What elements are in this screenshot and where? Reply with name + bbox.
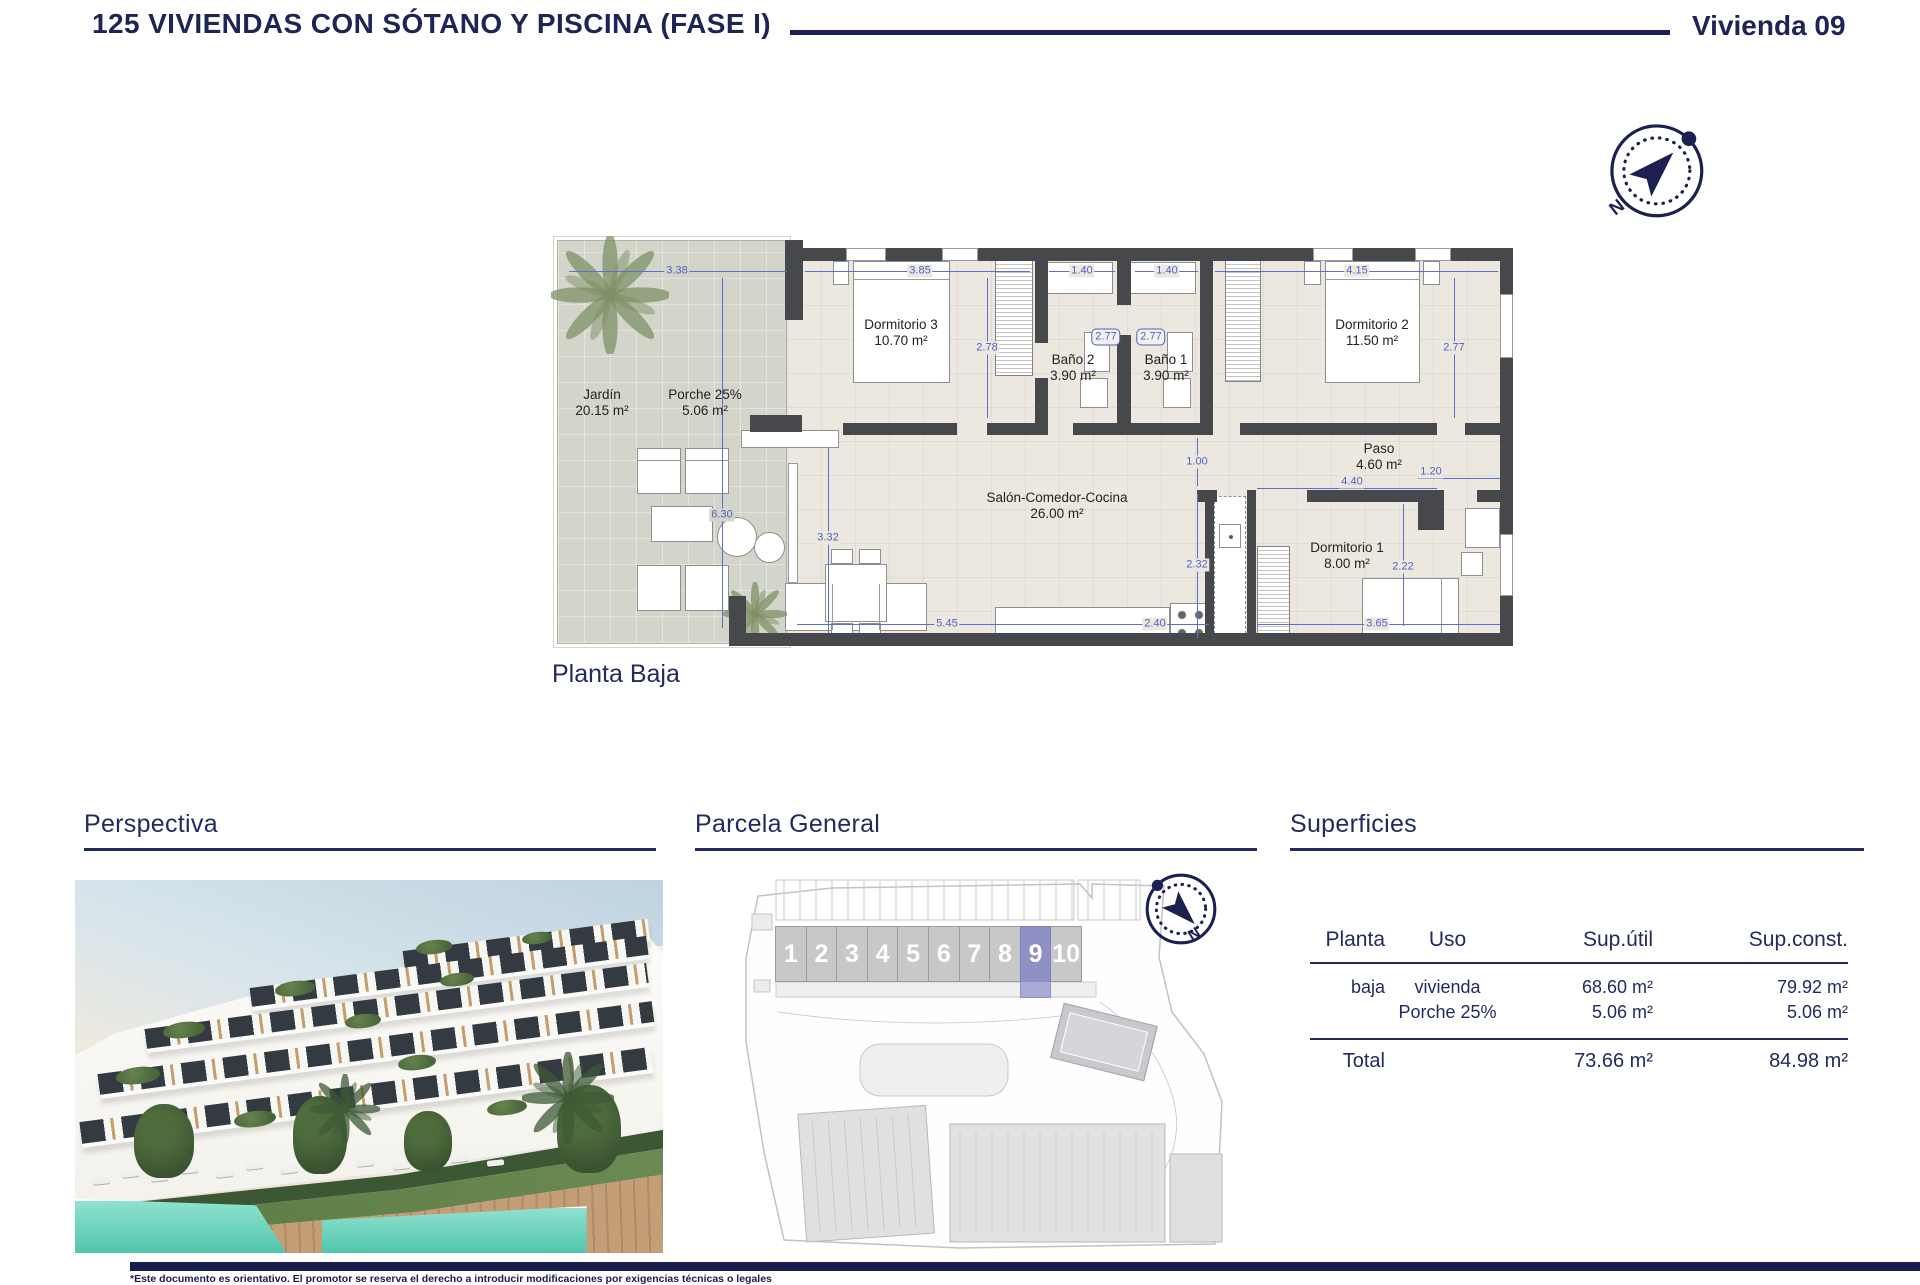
dim-label: 1.00 bbox=[1184, 456, 1209, 469]
col-header-sup-util: Sup.útil bbox=[1510, 928, 1653, 960]
unit-label: Vivienda 09 bbox=[1692, 10, 1846, 42]
wall bbox=[1200, 261, 1213, 435]
north-compass-icon: N bbox=[1600, 114, 1710, 224]
compass-north-letter: N bbox=[1605, 194, 1628, 219]
tree bbox=[134, 1104, 194, 1178]
wall bbox=[1247, 490, 1256, 646]
terrace-glass-door bbox=[788, 463, 798, 583]
floor-plan: 3.38 3.85 1.40 1.40 4.15 2.78 2.77 2.77 … bbox=[557, 238, 1530, 660]
wall bbox=[1073, 423, 1200, 435]
unit-cell: 6 bbox=[928, 926, 960, 982]
table-rule bbox=[1310, 962, 1848, 964]
kitchen-tall-unit bbox=[1214, 496, 1246, 644]
window bbox=[846, 248, 886, 261]
wall bbox=[729, 633, 1513, 646]
cell-empty bbox=[1385, 1050, 1510, 1073]
table-total-row: Total 73.66 m² 84.98 m² bbox=[1310, 1050, 1848, 1073]
wall bbox=[1465, 423, 1500, 435]
unit-cell: 4 bbox=[867, 926, 899, 982]
cell-sup-const: 79.92 m² bbox=[1653, 976, 1848, 999]
cell-uso: vivienda bbox=[1385, 976, 1510, 999]
plan-caption: Planta Baja bbox=[552, 660, 680, 689]
cell-sup-util: 5.06 m² bbox=[1510, 1001, 1653, 1024]
wall bbox=[787, 248, 1513, 261]
unit-row: 1 2 3 4 5 6 7 8 9 10 bbox=[775, 926, 1081, 982]
cell-total-sup-util: 73.66 m² bbox=[1510, 1050, 1653, 1073]
table-row: Porche 25% 5.06 m² 5.06 m² bbox=[1310, 1001, 1848, 1024]
dim-label: 2.32 bbox=[1184, 559, 1209, 572]
section-rule bbox=[695, 848, 1257, 851]
tree bbox=[404, 1111, 452, 1171]
dim-line bbox=[722, 278, 723, 628]
room-label-bano-1: Baño 13.90 m² bbox=[1143, 352, 1189, 384]
garden-chair bbox=[637, 565, 681, 611]
palm-tree-icon bbox=[310, 1074, 380, 1144]
window bbox=[1415, 248, 1451, 261]
room-label-dormitorio-2: Dormitorio 211.50 m² bbox=[1335, 317, 1409, 349]
footer-bar bbox=[130, 1262, 1920, 1271]
dim-label: 1.20 bbox=[1418, 466, 1443, 479]
wall bbox=[1418, 490, 1444, 530]
dining-table bbox=[825, 564, 887, 622]
bed-pillow-line bbox=[1326, 279, 1419, 280]
dim-label: 3.32 bbox=[815, 532, 840, 545]
dim-label: 1.40 bbox=[1069, 265, 1094, 278]
nightstand bbox=[833, 261, 849, 285]
site-compass-icon: N bbox=[1140, 868, 1222, 950]
pool bbox=[75, 1199, 287, 1253]
section-title-perspectiva: Perspectiva bbox=[84, 810, 218, 839]
cell-total-label: Total bbox=[1310, 1050, 1385, 1073]
wall bbox=[785, 240, 803, 320]
superficies-table: Planta Uso Sup.útil Sup.const. baja vivi… bbox=[1310, 928, 1848, 1073]
unit-cell: 5 bbox=[897, 926, 929, 982]
unit-cell: 2 bbox=[806, 926, 838, 982]
section-title-parcela: Parcela General bbox=[695, 810, 880, 839]
unit-cell: 1 bbox=[775, 926, 807, 982]
window bbox=[1313, 248, 1353, 261]
nightstand bbox=[1461, 552, 1483, 576]
wall bbox=[843, 423, 957, 435]
col-header-planta: Planta bbox=[1310, 928, 1385, 960]
wall bbox=[1307, 490, 1418, 502]
dim-label: 4.40 bbox=[1339, 476, 1364, 489]
dim-label: 3.38 bbox=[664, 265, 689, 278]
wall bbox=[1240, 423, 1437, 435]
tv-sideboard bbox=[741, 430, 839, 448]
wall bbox=[1035, 261, 1048, 343]
unit-cell: 8 bbox=[989, 926, 1021, 982]
wall bbox=[1117, 335, 1131, 435]
cell-planta bbox=[1310, 1001, 1385, 1024]
garden-table bbox=[651, 506, 713, 542]
section-rule bbox=[1290, 848, 1864, 851]
dim-label: 2.77 bbox=[1091, 329, 1120, 346]
dim-label: 1.40 bbox=[1154, 265, 1179, 278]
dim-label: 4.15 bbox=[1344, 265, 1369, 278]
dim-label: 2.77 bbox=[1136, 329, 1165, 346]
footer-disclaimer: *Este documento es orientativo. El promo… bbox=[130, 1273, 772, 1285]
garden-chair bbox=[637, 448, 681, 494]
dim-label: 5.45 bbox=[934, 618, 959, 631]
room-label-dormitorio-1: Dormitorio 18.00 m² bbox=[1310, 540, 1384, 572]
palm-tree-icon bbox=[551, 236, 669, 354]
window bbox=[1500, 534, 1513, 596]
table-row: baja vivienda 68.60 m² 79.92 m² bbox=[1310, 976, 1848, 999]
dim-label: 2.78 bbox=[974, 342, 999, 355]
nightstand bbox=[1423, 261, 1440, 285]
bed-pillow-line bbox=[854, 279, 949, 280]
section-title-superficies: Superficies bbox=[1290, 810, 1417, 839]
wall bbox=[1477, 490, 1500, 502]
cell-sup-util: 68.60 m² bbox=[1510, 976, 1653, 999]
wall bbox=[750, 415, 802, 432]
section-rule bbox=[84, 848, 656, 851]
cell-uso: Porche 25% bbox=[1385, 1001, 1510, 1024]
bed-pillow-line bbox=[1441, 579, 1442, 634]
nightstand bbox=[1304, 261, 1321, 285]
unit-cell-highlighted: 9 bbox=[1020, 926, 1052, 982]
room-label-bano-2: Baño 23.90 m² bbox=[1050, 352, 1096, 384]
header-rule bbox=[790, 30, 1670, 35]
dim-label: 2.40 bbox=[1142, 618, 1167, 631]
room-label-paso: Paso4.60 m² bbox=[1356, 441, 1402, 473]
window bbox=[942, 248, 978, 261]
cell-sup-const: 5.06 m² bbox=[1653, 1001, 1848, 1024]
table-rule bbox=[1310, 1038, 1848, 1040]
dim-label: 2.77 bbox=[1441, 342, 1466, 355]
dim-label: 2.22 bbox=[1390, 561, 1415, 574]
dining-chair bbox=[831, 549, 853, 564]
oven bbox=[1219, 524, 1241, 548]
table-header-row: Planta Uso Sup.útil Sup.const. bbox=[1310, 928, 1848, 960]
wardrobe bbox=[995, 260, 1033, 376]
pouf bbox=[754, 532, 785, 563]
room-label-dormitorio-3: Dormitorio 310.70 m² bbox=[864, 317, 938, 349]
room-label-porche: Porche 25%5.06 m² bbox=[668, 387, 742, 419]
wall bbox=[729, 596, 746, 646]
col-header-sup-const: Sup.const. bbox=[1653, 928, 1848, 960]
cell-total-sup-const: 84.98 m² bbox=[1653, 1050, 1848, 1073]
dim-label: 3.65 bbox=[1364, 618, 1389, 631]
unit-cell: 10 bbox=[1050, 926, 1082, 982]
wall bbox=[1117, 261, 1131, 305]
unit-cell: 3 bbox=[836, 926, 868, 982]
room-label-jardin: Jardín20.15 m² bbox=[575, 387, 628, 419]
chair-back-line bbox=[638, 460, 680, 461]
cell-planta: baja bbox=[1310, 976, 1385, 999]
palm-tree-icon bbox=[522, 1052, 614, 1144]
desk bbox=[1465, 508, 1500, 548]
unit-cell: 7 bbox=[959, 926, 991, 982]
wardrobe bbox=[1257, 546, 1290, 640]
dining-chair bbox=[859, 549, 881, 564]
window bbox=[1500, 294, 1513, 358]
wardrobe bbox=[1225, 260, 1261, 382]
pouf bbox=[717, 517, 757, 557]
page-title: 125 VIVIENDAS CON SÓTANO Y PISCINA (FASE… bbox=[92, 8, 771, 40]
room-label-salon: Salón-Comedor-Cocina26.00 m² bbox=[986, 490, 1127, 522]
dim-label: 3.85 bbox=[907, 265, 932, 278]
col-header-uso: Uso bbox=[1385, 928, 1510, 960]
wall bbox=[987, 423, 1043, 435]
dim-label: 6.30 bbox=[709, 509, 734, 522]
perspective-render bbox=[75, 880, 663, 1253]
